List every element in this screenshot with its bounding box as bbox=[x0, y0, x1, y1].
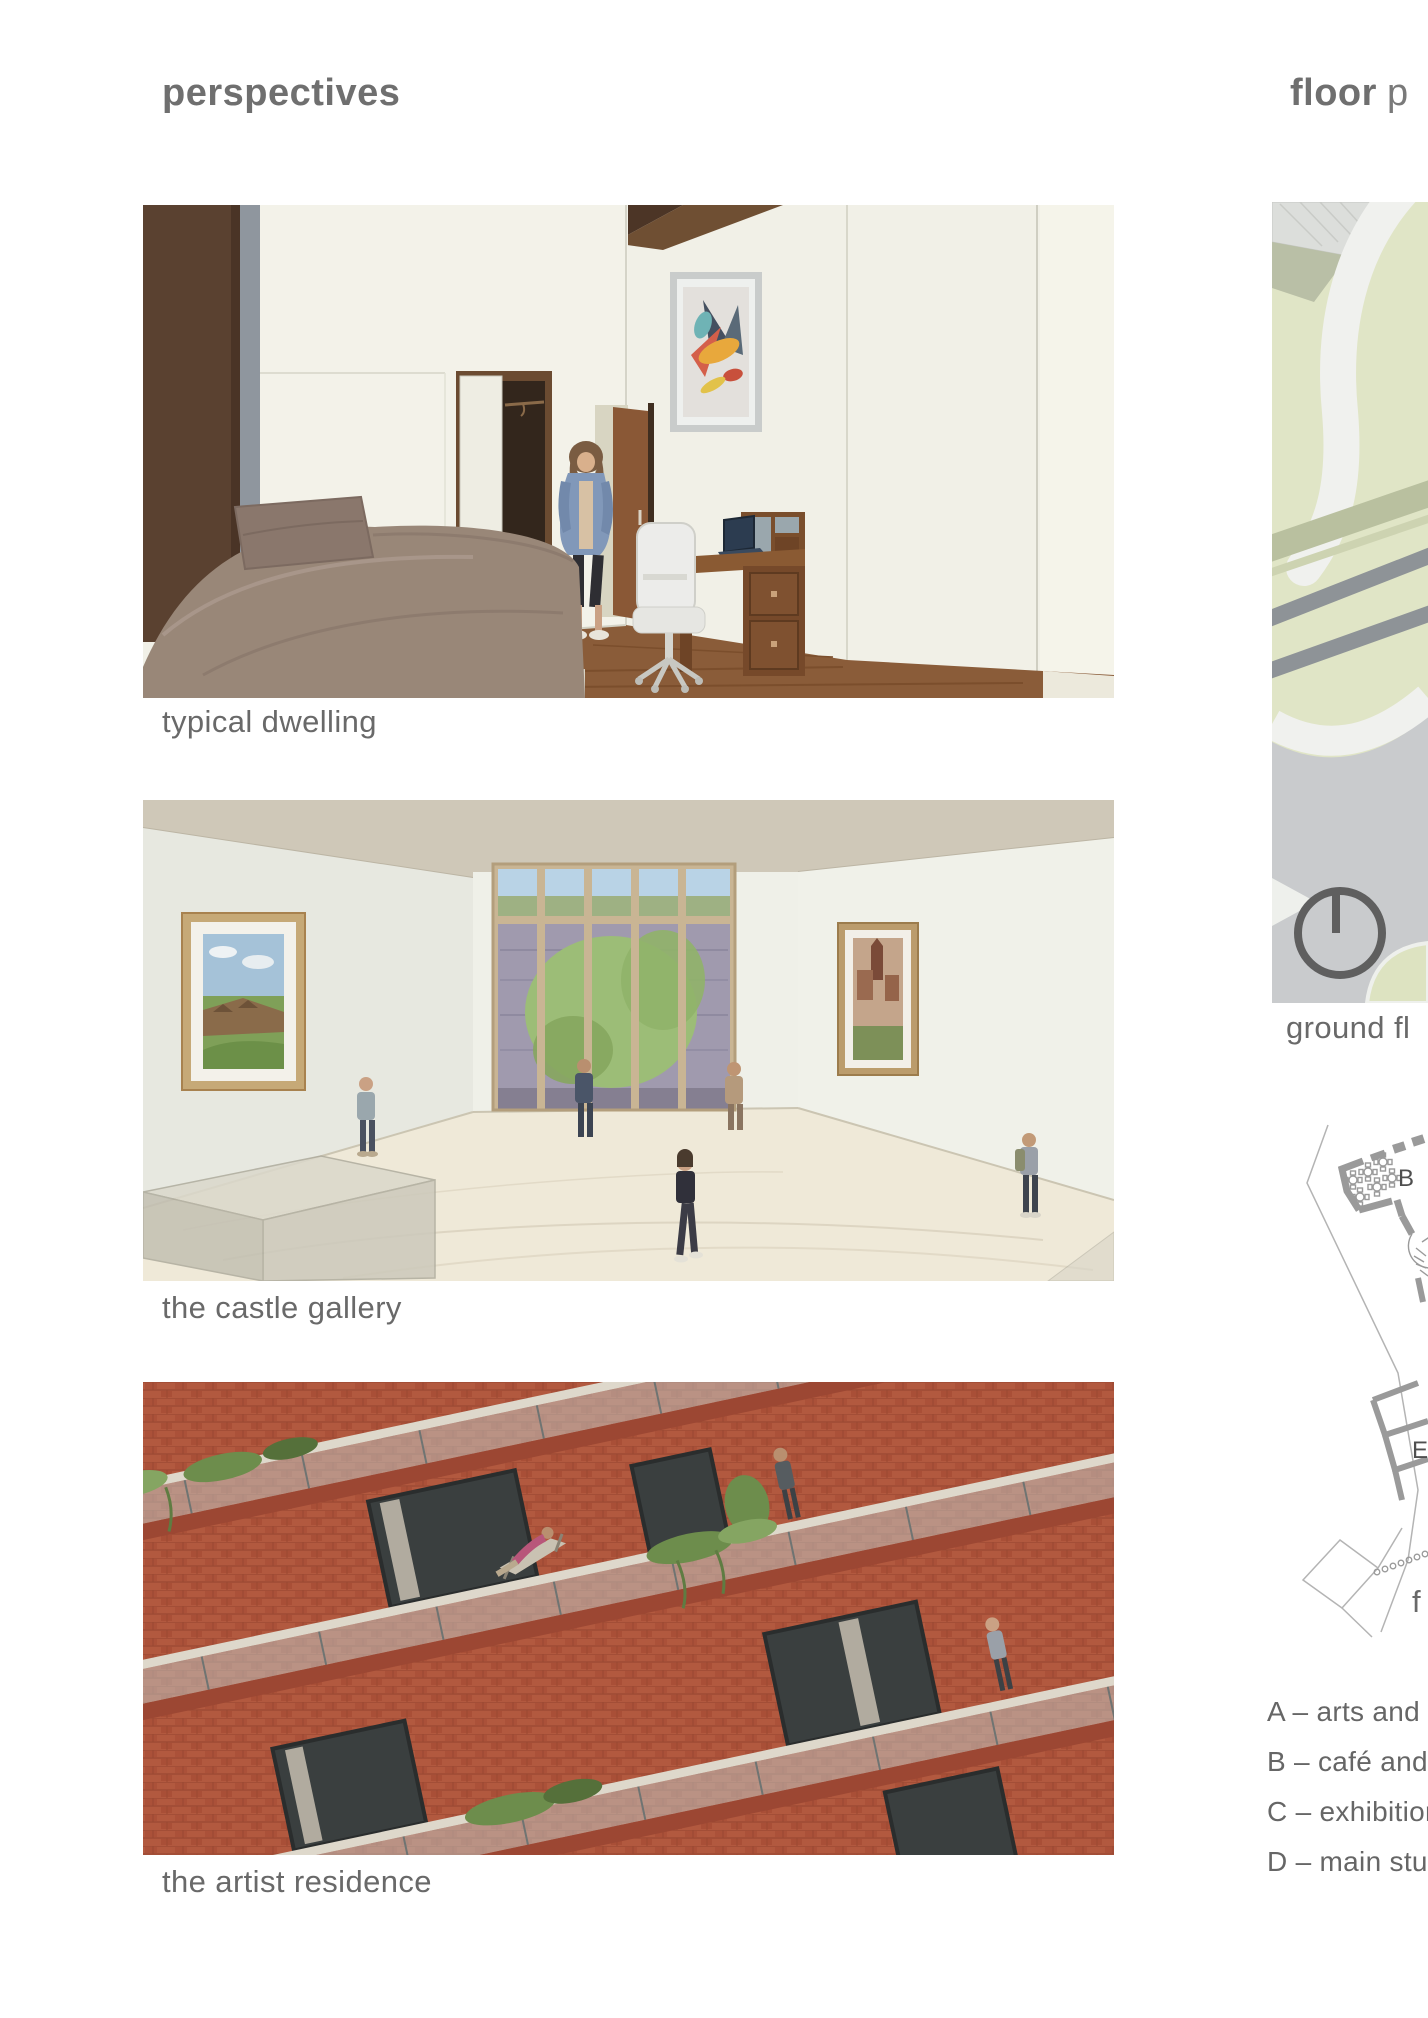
legend-item-d: D – main studi bbox=[1267, 1846, 1428, 1878]
spiral-stair bbox=[1408, 1234, 1428, 1276]
site-plan bbox=[1272, 202, 1428, 1003]
plan-letter-lower: E bbox=[1412, 1437, 1428, 1464]
legend-item-a: A – arts and cr bbox=[1267, 1696, 1428, 1728]
floor-plan-drawing: B E bbox=[1150, 1090, 1428, 1650]
caption-ground-floor: ground fl bbox=[1286, 1010, 1410, 1046]
floor-plans-title: floorp bbox=[1290, 72, 1409, 115]
ground-floor-plan-image bbox=[1272, 202, 1428, 1003]
legend-item-b: B – café and re bbox=[1267, 1746, 1428, 1778]
bedroom-render bbox=[143, 205, 1114, 698]
door-jambs bbox=[1392, 1134, 1425, 1153]
abstract-artwork bbox=[670, 272, 762, 432]
caption-castle-gallery: the castle gallery bbox=[162, 1290, 402, 1326]
plan-letter-cafe: B bbox=[1398, 1165, 1414, 1192]
castle-gallery-image bbox=[143, 800, 1114, 1281]
gallery-render bbox=[143, 800, 1114, 1281]
caption-artist-residence: the artist residence bbox=[162, 1864, 432, 1900]
floor-plans-title-bold: floor bbox=[1290, 72, 1377, 114]
artist-residence-image bbox=[143, 1382, 1114, 1855]
residence-render bbox=[143, 1382, 1114, 1855]
right-wall bbox=[1040, 205, 1114, 698]
window-symbols bbox=[1374, 1551, 1428, 1575]
right-painting bbox=[838, 923, 918, 1075]
first-floor-plan-image: B E bbox=[1150, 1090, 1428, 1650]
left-painting bbox=[182, 913, 305, 1090]
legend-item-c: C – exhibition s bbox=[1267, 1796, 1428, 1828]
gallery-window bbox=[493, 864, 735, 1110]
caption-typical-dwelling: typical dwelling bbox=[162, 704, 377, 740]
floor-plans-title-light: p bbox=[1387, 72, 1409, 114]
perspectives-title: perspectives bbox=[162, 72, 400, 115]
typical-dwelling-image bbox=[143, 205, 1114, 698]
caption-first-floor: f bbox=[1412, 1584, 1421, 1620]
